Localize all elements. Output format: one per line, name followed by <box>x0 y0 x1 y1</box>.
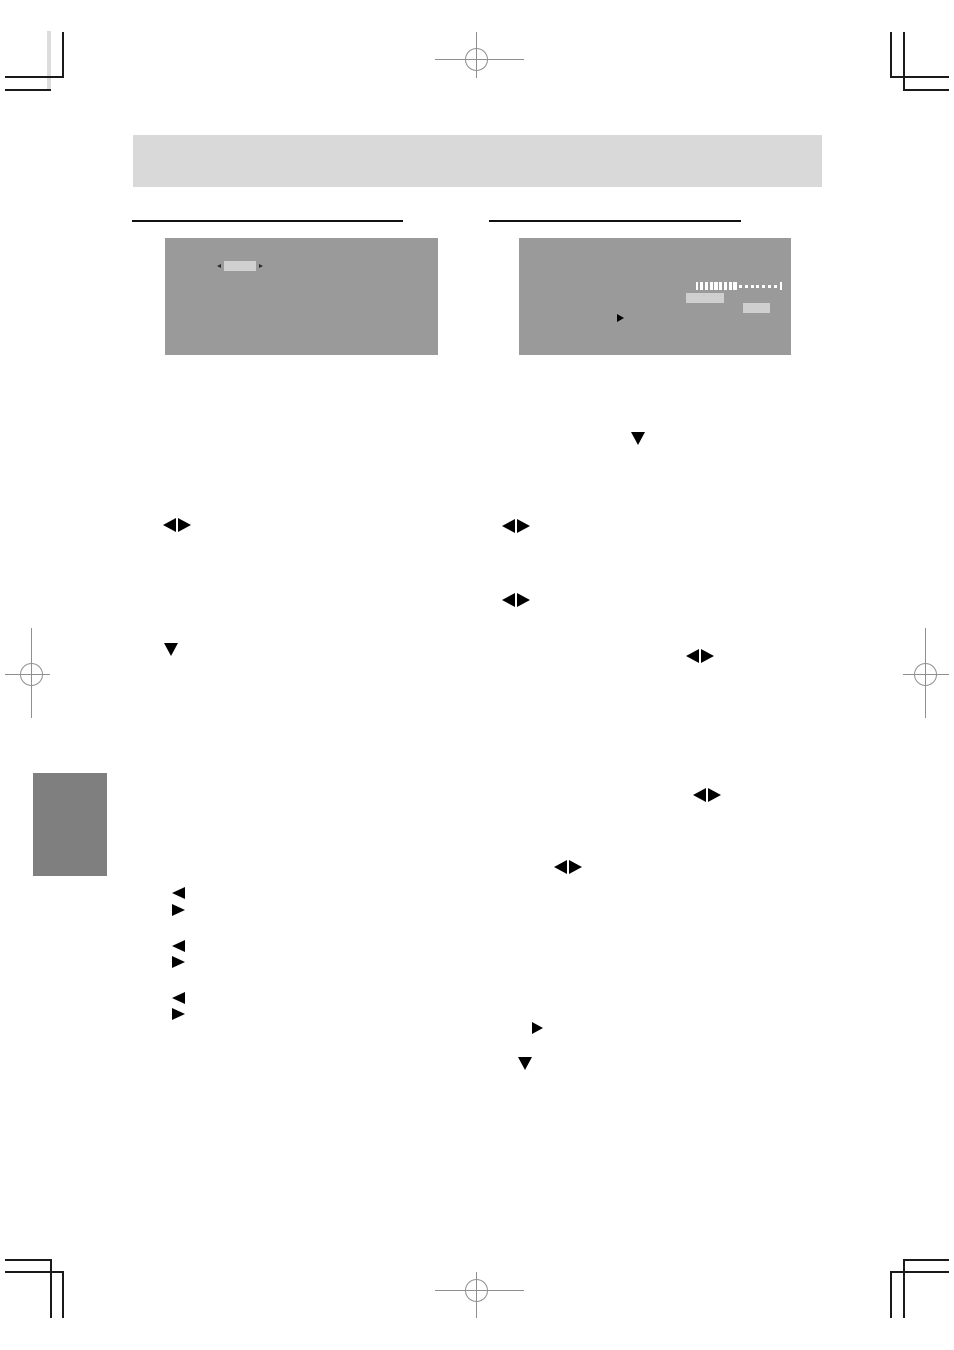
selection-highlight-b <box>743 303 770 313</box>
left-right-arrow-icon <box>686 649 714 663</box>
level-bar-filled-segment <box>714 282 717 290</box>
level-bar-filled-segment <box>705 282 708 290</box>
level-bar-dash-segment <box>768 285 771 288</box>
left-right-arrow-icon <box>693 788 721 802</box>
level-bar-end-tick <box>780 282 782 290</box>
level-bar-start-tick <box>696 282 698 290</box>
level-bar-dash-segment <box>739 285 742 288</box>
page-header-bar <box>133 135 822 187</box>
selection-highlight-a <box>686 293 724 303</box>
level-bar-dash-segment <box>774 285 777 288</box>
left-right-arrow-icon <box>554 860 582 874</box>
level-bar-dash-segment <box>762 285 765 288</box>
down-arrow-icon <box>518 1057 532 1070</box>
level-bar-filled-segment <box>719 282 722 290</box>
left-right-arrow-icon <box>502 519 530 533</box>
level-bar-filled-segment <box>733 282 736 290</box>
level-bar-filled-group <box>700 282 738 290</box>
level-bar-filled-segment <box>724 282 727 290</box>
right-arrow-icon <box>172 956 185 968</box>
section-rule-left <box>132 220 403 222</box>
cursor-right-arrow-icon <box>617 314 624 322</box>
right-arrow-icon <box>172 1008 185 1020</box>
level-bar-dash-segment <box>745 285 748 288</box>
down-arrow-icon <box>164 643 178 656</box>
right-arrow-icon <box>532 1022 543 1034</box>
left-right-arrow-icon <box>163 518 191 532</box>
level-bar-filled-segment <box>729 282 732 290</box>
osd-screenshot-left <box>165 238 438 355</box>
level-bar-dash-segment <box>751 285 754 288</box>
level-bar-dash-segment <box>756 285 759 288</box>
manual-page <box>0 0 954 1350</box>
osd-screenshot-right <box>519 238 791 355</box>
level-bar-dash-group <box>739 282 780 288</box>
level-bar-filled-segment <box>710 282 713 290</box>
level-bar-filled-segment <box>700 282 703 290</box>
chapter-side-tab <box>33 773 107 876</box>
left-right-arrow-icon <box>502 593 530 607</box>
right-arrow-icon <box>172 904 185 916</box>
tiny-left-arrow-icon <box>217 264 221 268</box>
left-arrow-icon <box>172 887 185 899</box>
left-arrow-icon <box>172 992 185 1004</box>
menu-value-highlight <box>224 261 256 271</box>
section-rule-right <box>489 220 741 222</box>
tiny-right-arrow-icon <box>259 264 263 268</box>
left-arrow-icon <box>172 940 185 952</box>
down-arrow-icon <box>631 432 645 445</box>
